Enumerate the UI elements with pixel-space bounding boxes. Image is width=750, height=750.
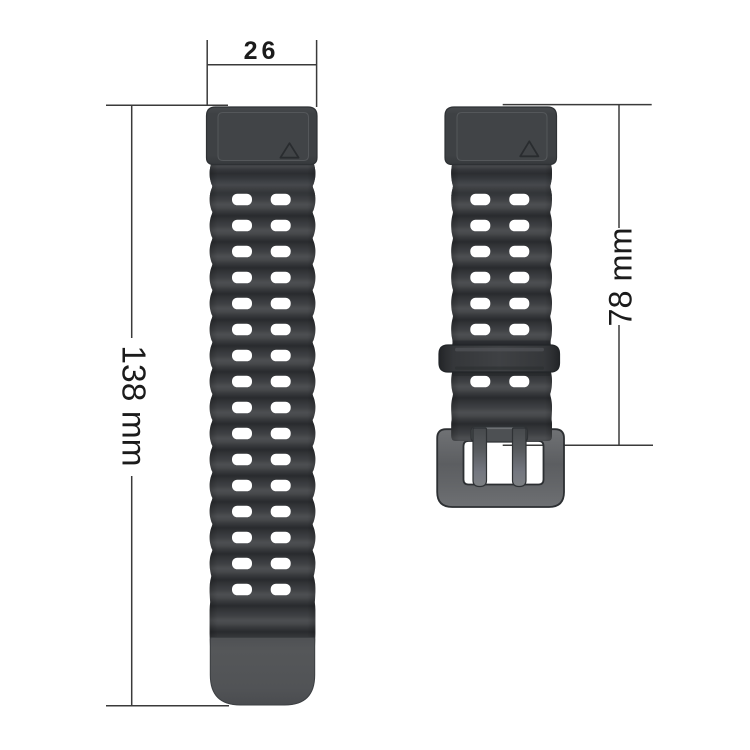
svg-text:138 mm: 138 mm [115,345,152,466]
svg-text:78 mm: 78 mm [603,228,639,327]
svg-text:26: 26 [244,37,280,65]
